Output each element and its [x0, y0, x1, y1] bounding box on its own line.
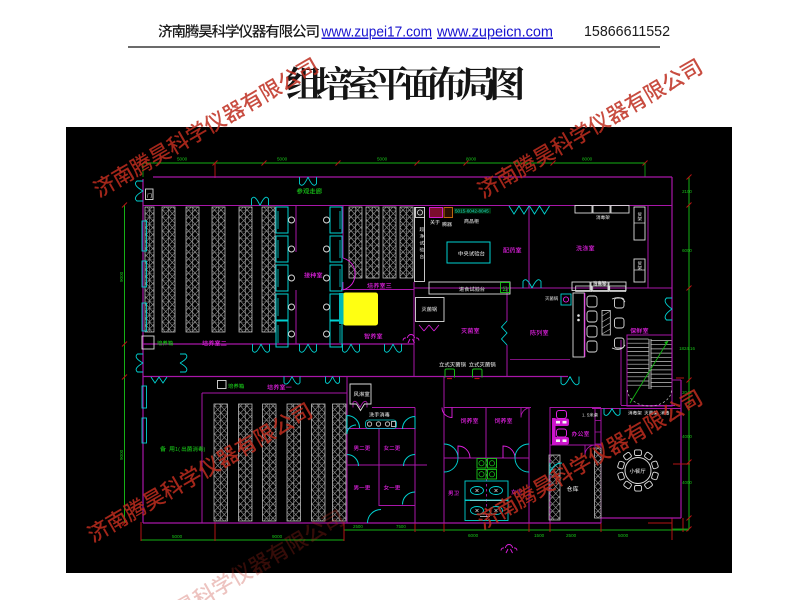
- svg-text:8000: 8000: [466, 157, 477, 162]
- svg-text:5000: 5000: [177, 157, 188, 162]
- svg-text:2500: 2500: [353, 524, 363, 529]
- svg-text:7500: 7500: [396, 524, 406, 529]
- svg-text:9000: 9000: [272, 534, 283, 539]
- svg-text:5015-6042-8045: 5015-6042-8045: [455, 209, 489, 214]
- svg-text:15866611552: 15866611552: [584, 24, 670, 40]
- svg-text:5000: 5000: [618, 533, 629, 538]
- svg-text:5000: 5000: [172, 534, 183, 539]
- svg-text:.: .: [584, 413, 585, 418]
- svg-text:9000: 9000: [119, 449, 124, 460]
- svg-text:6000: 6000: [682, 248, 692, 253]
- svg-text:9000: 9000: [119, 271, 124, 282]
- svg-text:2100: 2100: [682, 189, 692, 194]
- svg-text:www.zupei17.com: www.zupei17.com: [321, 24, 432, 41]
- svg-text:4000: 4000: [682, 480, 692, 485]
- svg-text:(: (: [178, 447, 180, 453]
- svg-text:8000: 8000: [582, 157, 593, 162]
- svg-text:5000: 5000: [377, 157, 388, 162]
- svg-text:www.zupeicn.com: www.zupeicn.com: [436, 24, 553, 41]
- svg-text:1824.16: 1824.16: [679, 346, 695, 351]
- svg-text:1500: 1500: [534, 533, 545, 538]
- svg-text:6000: 6000: [468, 533, 479, 538]
- svg-text:4000: 4000: [682, 434, 692, 439]
- svg-text:2500: 2500: [566, 533, 577, 538]
- svg-text:5000: 5000: [277, 157, 288, 162]
- svg-text:): ): [204, 447, 206, 453]
